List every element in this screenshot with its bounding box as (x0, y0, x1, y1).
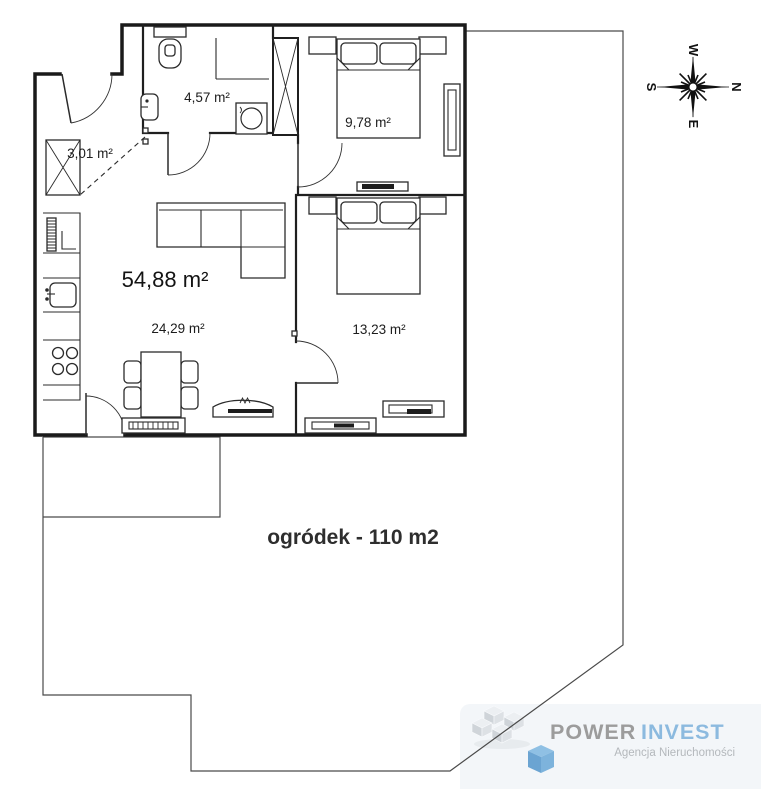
tv-console-icon (357, 182, 408, 191)
bedroom1-door-icon (298, 143, 342, 187)
compass-letter-bottom: E (686, 120, 701, 129)
nightstand-icon (309, 197, 336, 214)
logo-tagline: Agencja Nieruchomości (614, 747, 735, 759)
nightstand-icon (309, 37, 336, 54)
bedroom2-door-icon (296, 341, 338, 383)
nightstand-icon (419, 197, 446, 214)
logo-word-invest: INVEST (641, 720, 725, 744)
bedroom2-window-icon (305, 418, 376, 433)
room-hall: 3,01 m² (46, 74, 113, 195)
terrace-outline-path (43, 437, 220, 517)
shaft-closet-icon (273, 38, 298, 135)
tv-console-icon (213, 398, 273, 417)
living-area-label: 24,29 m² (151, 321, 205, 336)
terrace-door-icon (86, 393, 125, 435)
kitchen-radiator-icon (47, 218, 56, 251)
compass-rose: W S N E (644, 44, 744, 129)
washing-machine-icon (236, 103, 267, 134)
bedroom1-window-icon (444, 84, 460, 156)
double-bed-icon (337, 198, 420, 294)
floorplan-page: POWER INVEST Agencja Nieruchomości ogród… (0, 0, 761, 789)
floorplan-canvas: POWER INVEST Agencja Nieruchomości ogród… (0, 0, 761, 789)
room-bedroom-2: 13,23 m² (296, 197, 446, 433)
apartment-total-area-label: 54,88 m² (122, 267, 209, 292)
bathroom-door-icon (168, 133, 210, 175)
kitchen-sink-icon (45, 283, 76, 307)
entrance-door-icon (62, 74, 112, 123)
fridge-icon (62, 231, 76, 249)
compass-letter-left: S (644, 83, 659, 92)
agency-logo: POWER INVEST Agencja Nieruchomości (460, 704, 761, 789)
living-window-icon (122, 418, 185, 433)
dresser-icon (383, 401, 444, 417)
nightstand-icon (419, 37, 446, 54)
bathroom-area-label: 4,57 m² (184, 90, 230, 105)
toilet-icon (154, 27, 186, 68)
garden-area-label: ogródek - 110 m2 (267, 526, 439, 549)
bedroom2-area-label: 13,23 m² (352, 322, 406, 337)
dining-set-icon (124, 352, 198, 417)
stove-icon (53, 348, 78, 375)
compass-letter-top: W (686, 44, 701, 57)
bedroom1-area-label: 9,78 m² (345, 115, 391, 130)
compass-letter-right: N (729, 82, 744, 91)
room-living: 54,88 m² 24,29 m² (43, 203, 285, 435)
logo-blue-cube-icon (528, 745, 554, 773)
hall-area-label: 3,01 m² (67, 146, 113, 161)
room-bedroom-1: 9,78 m² (298, 37, 460, 191)
logo-word-power: POWER (550, 720, 636, 744)
shower-icon (216, 38, 269, 79)
dining-table-icon (141, 352, 181, 417)
bathroom-sink-icon (141, 94, 158, 120)
room-bathroom: 4,57 m² (141, 27, 269, 175)
kitchen-counter-icon (43, 213, 80, 400)
